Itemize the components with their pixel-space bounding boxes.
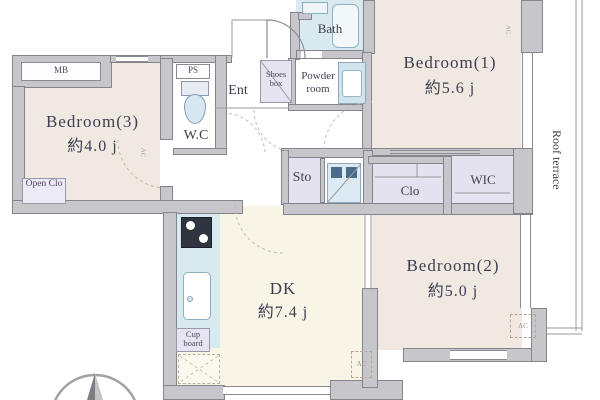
kitchen-faucet	[187, 296, 193, 302]
wall-bath-right	[363, 0, 375, 54]
bath-door-gap	[301, 51, 322, 58]
ac-label-dk: AC	[351, 360, 372, 368]
wall-wc-bottom	[173, 148, 227, 155]
toilet-bowl	[184, 94, 206, 124]
powder-room-label: Powder room	[295, 70, 341, 95]
wall-sto-top	[281, 148, 372, 158]
refrigerator-space	[178, 354, 220, 384]
shoes-box-label: Shoes box	[261, 70, 291, 88]
ac-pipe-note-bedroom3: AC	[139, 133, 146, 173]
washer-detail-2	[346, 167, 357, 178]
cup-board-label: Cup board	[177, 330, 209, 348]
bedroom1-name: Bedroom(1)	[375, 53, 525, 73]
wall-bedroom1-column	[521, 0, 543, 53]
ent-label: Ent	[220, 83, 256, 99]
wall-sto-washer-divider	[320, 158, 325, 203]
wall-bedroom3-right-upper	[160, 58, 173, 140]
wall-wc-right	[215, 55, 227, 152]
bedroom2-size: 約5.0 j	[378, 283, 528, 301]
window-dk-bottom	[223, 386, 330, 395]
window-bedroom3-top	[116, 56, 148, 62]
wall-dk-bottom-left	[163, 385, 225, 400]
dk-size: 約7.4 j	[227, 304, 339, 322]
washer-detail-1	[331, 167, 342, 178]
open-clo-label: Open Clo	[25, 180, 63, 190]
wic-label: WIC	[461, 173, 505, 188]
bath-label: Bath	[303, 22, 357, 37]
wall-powder-bottom	[288, 104, 370, 111]
sto-label: Sto	[284, 170, 320, 186]
ac-pipe-note-bedroom1: AC	[504, 10, 511, 50]
bedroom1-size: 約5.6 j	[375, 80, 525, 98]
wall-clo-top	[368, 156, 448, 164]
ac-label-bedroom2: AC	[510, 322, 536, 330]
window-bedroom2-bottom	[450, 350, 507, 360]
dk-name: DK	[238, 279, 328, 299]
wall-clo-wic-divider	[443, 156, 452, 215]
bedroom2-name: Bedroom(2)	[378, 256, 528, 276]
ps-label: PS	[176, 66, 210, 75]
bedroom3-name: Bedroom(3)	[25, 112, 160, 132]
bedroom3-floor-upper	[112, 61, 160, 90]
wall-dk-left	[163, 212, 177, 400]
roof-terrace-label: Roof terrace	[549, 110, 563, 210]
bath-counter	[302, 2, 328, 14]
bedroom1-floor	[372, 0, 521, 150]
powder-sink-bowl	[342, 70, 362, 97]
stove-burner-2	[199, 234, 208, 243]
bedroom1-sliding-door	[390, 150, 480, 154]
floor-plan: Bedroom(1) 約5.6 j Bedroom(2) 約5.0 j Bedr…	[0, 0, 600, 400]
stove-burner-1	[186, 221, 195, 230]
wc-label: W.C	[176, 128, 216, 144]
kitchen-stove	[181, 217, 212, 248]
wall-wic-right	[513, 148, 533, 214]
wall-storage-band-bottom	[283, 203, 533, 215]
mb-label: MB	[21, 66, 101, 75]
clo-label: Clo	[388, 184, 432, 199]
compass	[51, 373, 139, 400]
